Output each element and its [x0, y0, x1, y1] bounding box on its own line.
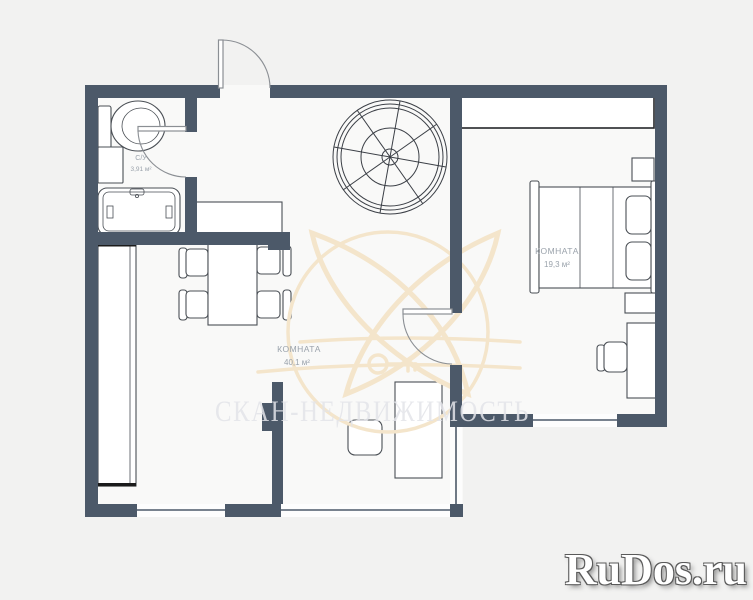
toilet-tank — [98, 106, 111, 148]
dining-chair-top-left — [179, 248, 208, 278]
wall-hallway-bottom — [85, 232, 290, 245]
wall-hallway-endcap — [268, 232, 290, 250]
living-room-label: КОМНАТА — [277, 344, 321, 354]
floor-plan-svg: СКАН-НЕДВИЖИМОСТЬ С/У 3,91 м² КОМНАТА 40… — [0, 0, 753, 600]
bedroom-wardrobe — [461, 94, 654, 128]
left-wardrobe — [98, 243, 136, 487]
desk-chair — [597, 342, 627, 372]
dining-table — [208, 243, 257, 325]
wardrobe-cap-bottom — [98, 483, 136, 487]
wall-left — [85, 85, 98, 517]
entrance-door-leaf — [219, 40, 224, 88]
bathroom-sink — [98, 147, 123, 183]
wall-bottom-seg1 — [85, 504, 137, 517]
dining-chair-bottom-left — [179, 290, 208, 320]
bed-footboard — [530, 181, 539, 293]
rudos-logo: RuDos.ru — [565, 548, 747, 592]
bathtub — [98, 188, 180, 235]
bathroom-label: С/У — [135, 155, 147, 162]
bedroom-door-leaf — [403, 309, 452, 314]
wall-right — [655, 85, 667, 427]
dining-chair-bottom-right — [257, 290, 291, 320]
bedroom-label: КОМНАТА — [535, 246, 579, 256]
wall-bottom-seg2 — [225, 504, 281, 517]
bedroom-desk — [627, 323, 656, 398]
bathroom-door-leaf — [138, 127, 186, 132]
wall-top-right — [270, 85, 667, 98]
bedroom-area: 19,3 м² — [544, 260, 570, 269]
pillow-1 — [626, 196, 651, 234]
pillow-2 — [626, 242, 651, 280]
living-room-area: 40,1 м² — [284, 358, 310, 367]
entrance-door-arc — [222, 40, 270, 88]
nightstand-bottom — [625, 293, 656, 313]
wall-bottom-post — [450, 504, 463, 517]
watermark-text: СКАН-НЕДВИЖИМОСТЬ — [215, 395, 530, 428]
floor-plan: СКАН-НЕДВИЖИМОСТЬ С/У 3,91 м² КОМНАТА 40… — [0, 0, 753, 600]
wall-bedroom-bottom-right — [617, 414, 667, 427]
wall-bathroom-upper — [185, 85, 197, 132]
nightstand-top — [632, 158, 654, 181]
wall-top-left — [85, 85, 220, 98]
wall-divider-upper — [450, 85, 462, 313]
double-bed — [530, 181, 659, 293]
hallway-cabinet — [195, 202, 282, 233]
bathroom-area: 3,91 м² — [130, 166, 152, 173]
dining-chair-top-right — [257, 246, 291, 276]
